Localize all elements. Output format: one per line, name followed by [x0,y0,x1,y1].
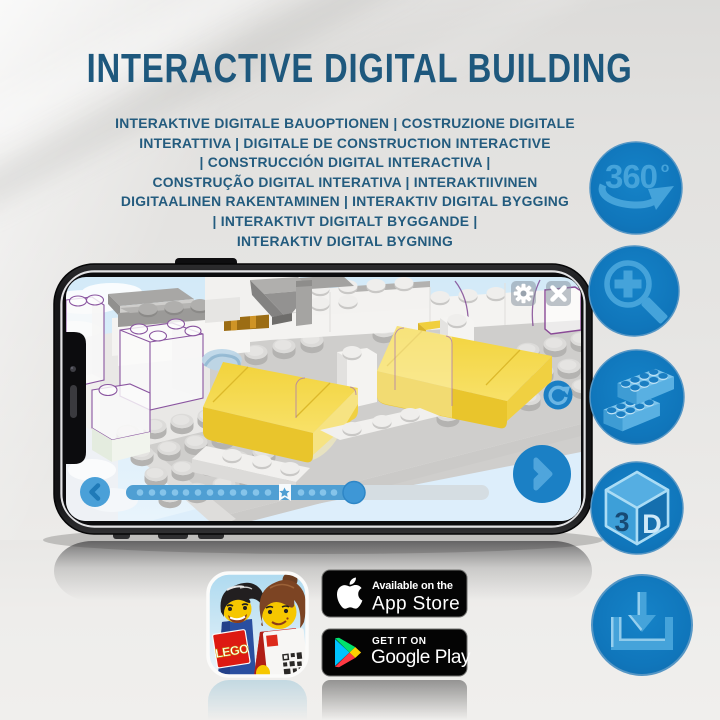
svg-text:o: o [661,159,670,175]
svg-text:Google Play: Google Play [371,647,471,668]
svg-text:3: 3 [614,507,629,537]
svg-text:GET IT ON: GET IT ON [372,636,427,647]
svg-text:Available on the: Available on the [372,580,453,592]
svg-text:D: D [642,509,662,539]
svg-text:App Store: App Store [372,594,460,615]
